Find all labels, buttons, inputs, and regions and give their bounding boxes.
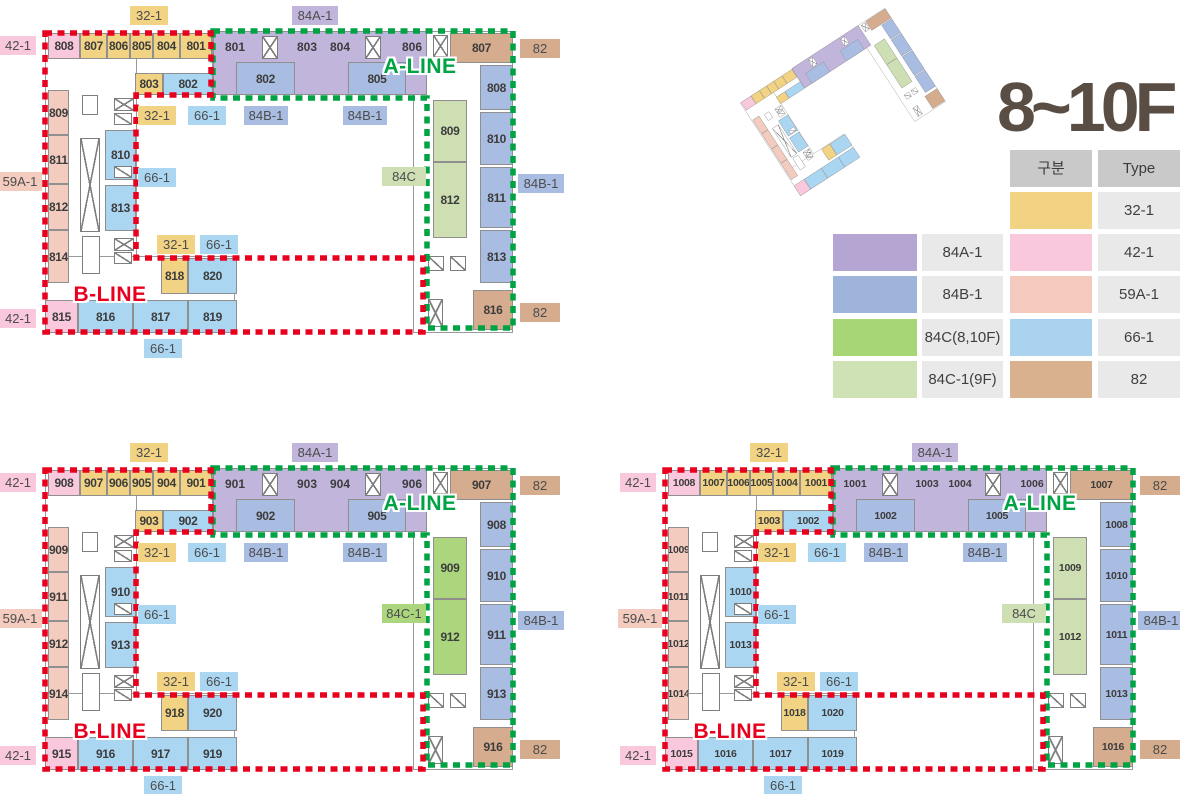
type-badge-82: 82 (520, 740, 560, 759)
type-badge-32-1: 32-1 (130, 443, 168, 462)
legend-swatch-84A-1 (833, 234, 917, 271)
legend-label-42-1: 42-1 (1098, 234, 1180, 271)
type-badge-66-1: 66-1 (144, 776, 182, 794)
type-badge-84A-1: 84A-1 (292, 443, 338, 462)
type-badge-84B-1: 84B-1 (343, 106, 387, 125)
type-badge-66-1: 66-1 (200, 235, 238, 254)
type-badge-84C: 84C (1002, 604, 1046, 623)
type-badge-32-1: 32-1 (130, 6, 168, 25)
legend-label-84A-1: 84A-1 (922, 234, 1003, 271)
type-badge-84B-1: 84B-1 (1138, 611, 1180, 630)
zone-84A-1 (792, 25, 871, 88)
type-badge-66-1: 66-1 (758, 605, 796, 624)
legend-label-82: 82 (1098, 361, 1180, 398)
type-badge-84C: 84C (382, 167, 426, 186)
type-badge-32-1: 32-1 (758, 543, 796, 562)
legend-swatch-84C-1(9F) (833, 361, 917, 398)
type-badge-66-1: 66-1 (820, 672, 858, 691)
type-badge-42-1: 42-1 (0, 309, 36, 328)
type-badge-59A-1: 59A-1 (0, 609, 42, 628)
type-badge-82: 82 (520, 303, 560, 322)
type-badge-82: 82 (1140, 740, 1180, 759)
type-badge-66-1: 66-1 (138, 605, 176, 624)
legend-label-66-1: 66-1 (1098, 319, 1180, 356)
legend-swatch-42-1 (1010, 234, 1092, 271)
floorplan-8f: 8088078068058048018038028028058078088108… (30, 6, 600, 366)
type-badge-82: 82 (520, 476, 560, 495)
legend-header-type: Type (1098, 150, 1180, 187)
type-badge-66-1: 66-1 (188, 106, 226, 125)
type-badge-59A-1: 59A-1 (0, 172, 42, 191)
type-badge-82: 82 (1140, 476, 1180, 495)
type-badge-66-1: 66-1 (200, 672, 238, 691)
b-line-label: B-LINE (74, 720, 147, 744)
legend-swatch-59A-1 (1010, 276, 1092, 313)
mini-plan-canvas (730, 0, 979, 209)
type-badge-84C-1: 84C-1 (382, 604, 426, 623)
type-badge-32-1: 32-1 (157, 235, 195, 254)
floor-range-title: 8~10F (997, 72, 1172, 142)
type-badge-66-1: 66-1 (188, 543, 226, 562)
legend-label-32-1: 32-1 (1098, 192, 1180, 229)
type-badge-42-1: 42-1 (0, 36, 36, 55)
legend-label-84C(8,10F): 84C(8,10F) (922, 319, 1003, 356)
type-badge-42-1: 42-1 (0, 473, 36, 492)
type-badge-59A-1: 59A-1 (618, 609, 662, 628)
type-badge-84B-1: 84B-1 (518, 174, 564, 193)
a-line-border (213, 468, 513, 765)
type-badge-32-1: 32-1 (138, 106, 176, 125)
legend-swatch-32-1 (1010, 192, 1092, 229)
type-badge-66-1: 66-1 (808, 543, 846, 562)
legend-swatch-82 (1010, 361, 1092, 398)
type-badge-66-1: 66-1 (138, 168, 176, 187)
legend-label-84B-1: 84B-1 (922, 276, 1003, 313)
legend-swatch-84B-1 (833, 276, 917, 313)
type-badge-84B-1: 84B-1 (518, 611, 564, 630)
type-badge-82: 82 (520, 39, 560, 58)
floorplan-9f: 9089079069059049019039029029059079089109… (30, 443, 600, 794)
legend-swatch-66-1 (1010, 319, 1092, 356)
legend-label-59A-1: 59A-1 (1098, 276, 1180, 313)
type-badge-84B-1: 84B-1 (244, 543, 288, 562)
type-badge-84B-1: 84B-1 (963, 543, 1007, 562)
a-line-label: A-LINE (384, 55, 457, 79)
type-badge-32-1: 32-1 (157, 672, 195, 691)
type-badge-42-1: 42-1 (620, 473, 656, 492)
a-line-border (833, 468, 1133, 765)
b-line-label: B-LINE (694, 720, 767, 744)
legend-swatch-84C(8,10F) (833, 319, 917, 356)
type-badge-66-1: 66-1 (764, 776, 802, 794)
a-line-label: A-LINE (384, 492, 457, 516)
b-line-label: B-LINE (74, 283, 147, 307)
type-badge-84A-1: 84A-1 (912, 443, 958, 462)
floorplan-sheet: 8088078068058048018038028028058078088108… (0, 0, 1180, 794)
a-line-label: A-LINE (1004, 492, 1077, 516)
type-badge-84A-1: 84A-1 (292, 6, 338, 25)
mini-overview-plan (730, 0, 946, 199)
legend-label-84C-1(9F): 84C-1(9F) (922, 361, 1003, 398)
floorplan-10f: 1008100710061005100410011003100210021005… (650, 443, 1180, 794)
type-badge-42-1: 42-1 (0, 746, 36, 765)
a-line-border (213, 31, 513, 328)
type-badge-42-1: 42-1 (620, 746, 656, 765)
type-badge-84B-1: 84B-1 (244, 106, 288, 125)
legend-header-category: 구분 (1010, 150, 1092, 187)
type-badge-84B-1: 84B-1 (343, 543, 387, 562)
type-badge-32-1: 32-1 (777, 672, 815, 691)
type-badge-84B-1: 84B-1 (864, 543, 908, 562)
type-badge-32-1: 32-1 (750, 443, 788, 462)
type-badge-32-1: 32-1 (138, 543, 176, 562)
type-badge-66-1: 66-1 (144, 339, 182, 358)
line-borders (30, 6, 600, 366)
